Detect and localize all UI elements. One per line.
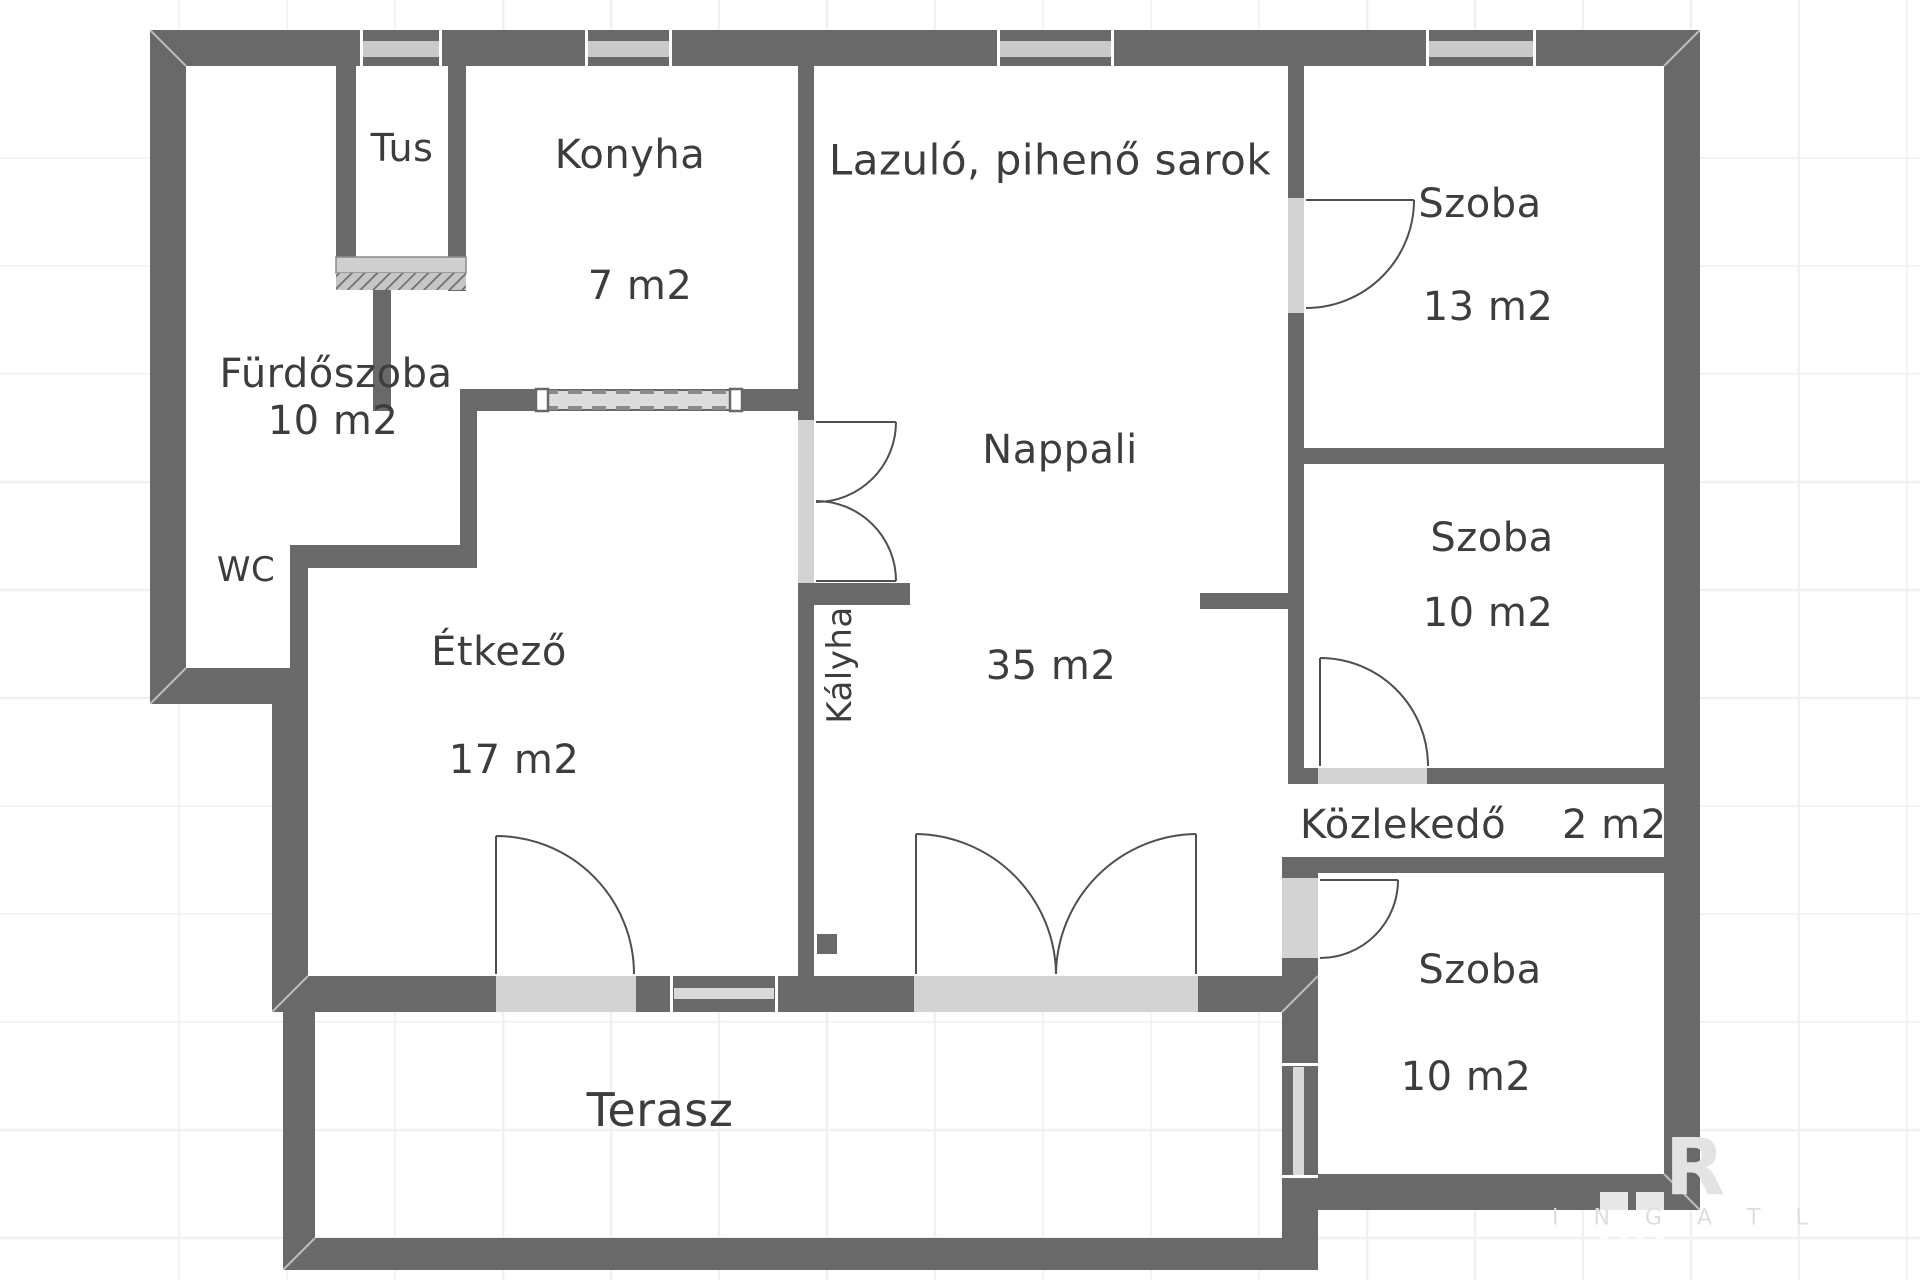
room-label-szoba10a: Szoba — [1430, 515, 1553, 561]
room-area-konyha: 7 m2 — [588, 263, 693, 309]
wall-terasz-left — [283, 1012, 315, 1270]
room-area-szoba10b: 10 m2 — [1401, 1054, 1532, 1100]
opening-nappali-terasz — [914, 976, 1198, 1012]
opening-etkezo-terasz — [496, 976, 636, 1012]
floorplan-drawing — [0, 0, 1920, 1280]
tus-shower-screen — [336, 257, 466, 290]
watermark-text: I N G A T L — [1552, 1206, 1822, 1231]
room-label-etkezo: Étkező — [431, 629, 567, 675]
konyha-serving-window — [536, 389, 742, 411]
wall-terasz-bottom — [283, 1238, 1318, 1270]
room-area-szoba13: 13 m2 — [1423, 284, 1554, 330]
room-label-konyha: Konyha — [555, 132, 706, 178]
wall-right-vertical-a — [1288, 66, 1304, 198]
opening-szoba-br — [1282, 878, 1318, 958]
post-marker — [817, 934, 837, 954]
wall-mid-vertical-a — [798, 66, 814, 420]
floorplan: Tus Konyha 7 m2 Lazuló, pihenő sarok Szo… — [0, 0, 1920, 1280]
wall-wc-right — [290, 545, 308, 672]
opening-etkezo-nappali — [798, 420, 814, 583]
opening-szoba13 — [1288, 198, 1304, 313]
wall-szoba13-divider — [1288, 448, 1664, 464]
room-area-kozlekedo: 2 m2 — [1562, 802, 1667, 848]
room-label-terasz: Terasz — [587, 1083, 734, 1137]
room-label-szoba10b: Szoba — [1418, 947, 1541, 993]
wall-connector — [460, 389, 477, 568]
wall-furdo-etkezo — [290, 545, 477, 568]
room-label-wc: WC — [217, 550, 275, 590]
wall-kalyha-stub — [814, 583, 910, 605]
room-area-furdoszoba: 10 m2 — [268, 398, 399, 444]
room-label-kalyha: Kályha — [820, 606, 860, 723]
room-label-szoba13: Szoba — [1418, 181, 1541, 227]
wall-left — [150, 30, 186, 704]
room-area-szoba10a: 10 m2 — [1423, 590, 1554, 636]
room-label-tus: Tus — [371, 126, 434, 170]
room-area-nappali: 35 m2 — [986, 643, 1117, 689]
room-label-lazulo: Lazuló, pihenő sarok — [829, 136, 1271, 185]
opening-szoba-mid — [1318, 768, 1427, 784]
wall-nappali-stub — [1200, 593, 1304, 609]
watermark-letter: R — [1665, 1123, 1725, 1213]
room-area-etkezo: 17 m2 — [449, 737, 580, 783]
wall-tus-left — [336, 66, 356, 261]
wall-mid-vertical-b — [798, 583, 814, 976]
wall-right — [1664, 30, 1700, 1210]
room-label-kozlekedo: Közlekedő — [1300, 802, 1506, 848]
wall-right-vertical-b — [1288, 313, 1304, 784]
wall-szoba-br-top — [1282, 857, 1664, 873]
wall-etkezo-left — [272, 668, 308, 1012]
room-label-furdoszoba: Fürdőszoba — [220, 351, 453, 397]
room-label-nappali: Nappali — [982, 427, 1137, 473]
